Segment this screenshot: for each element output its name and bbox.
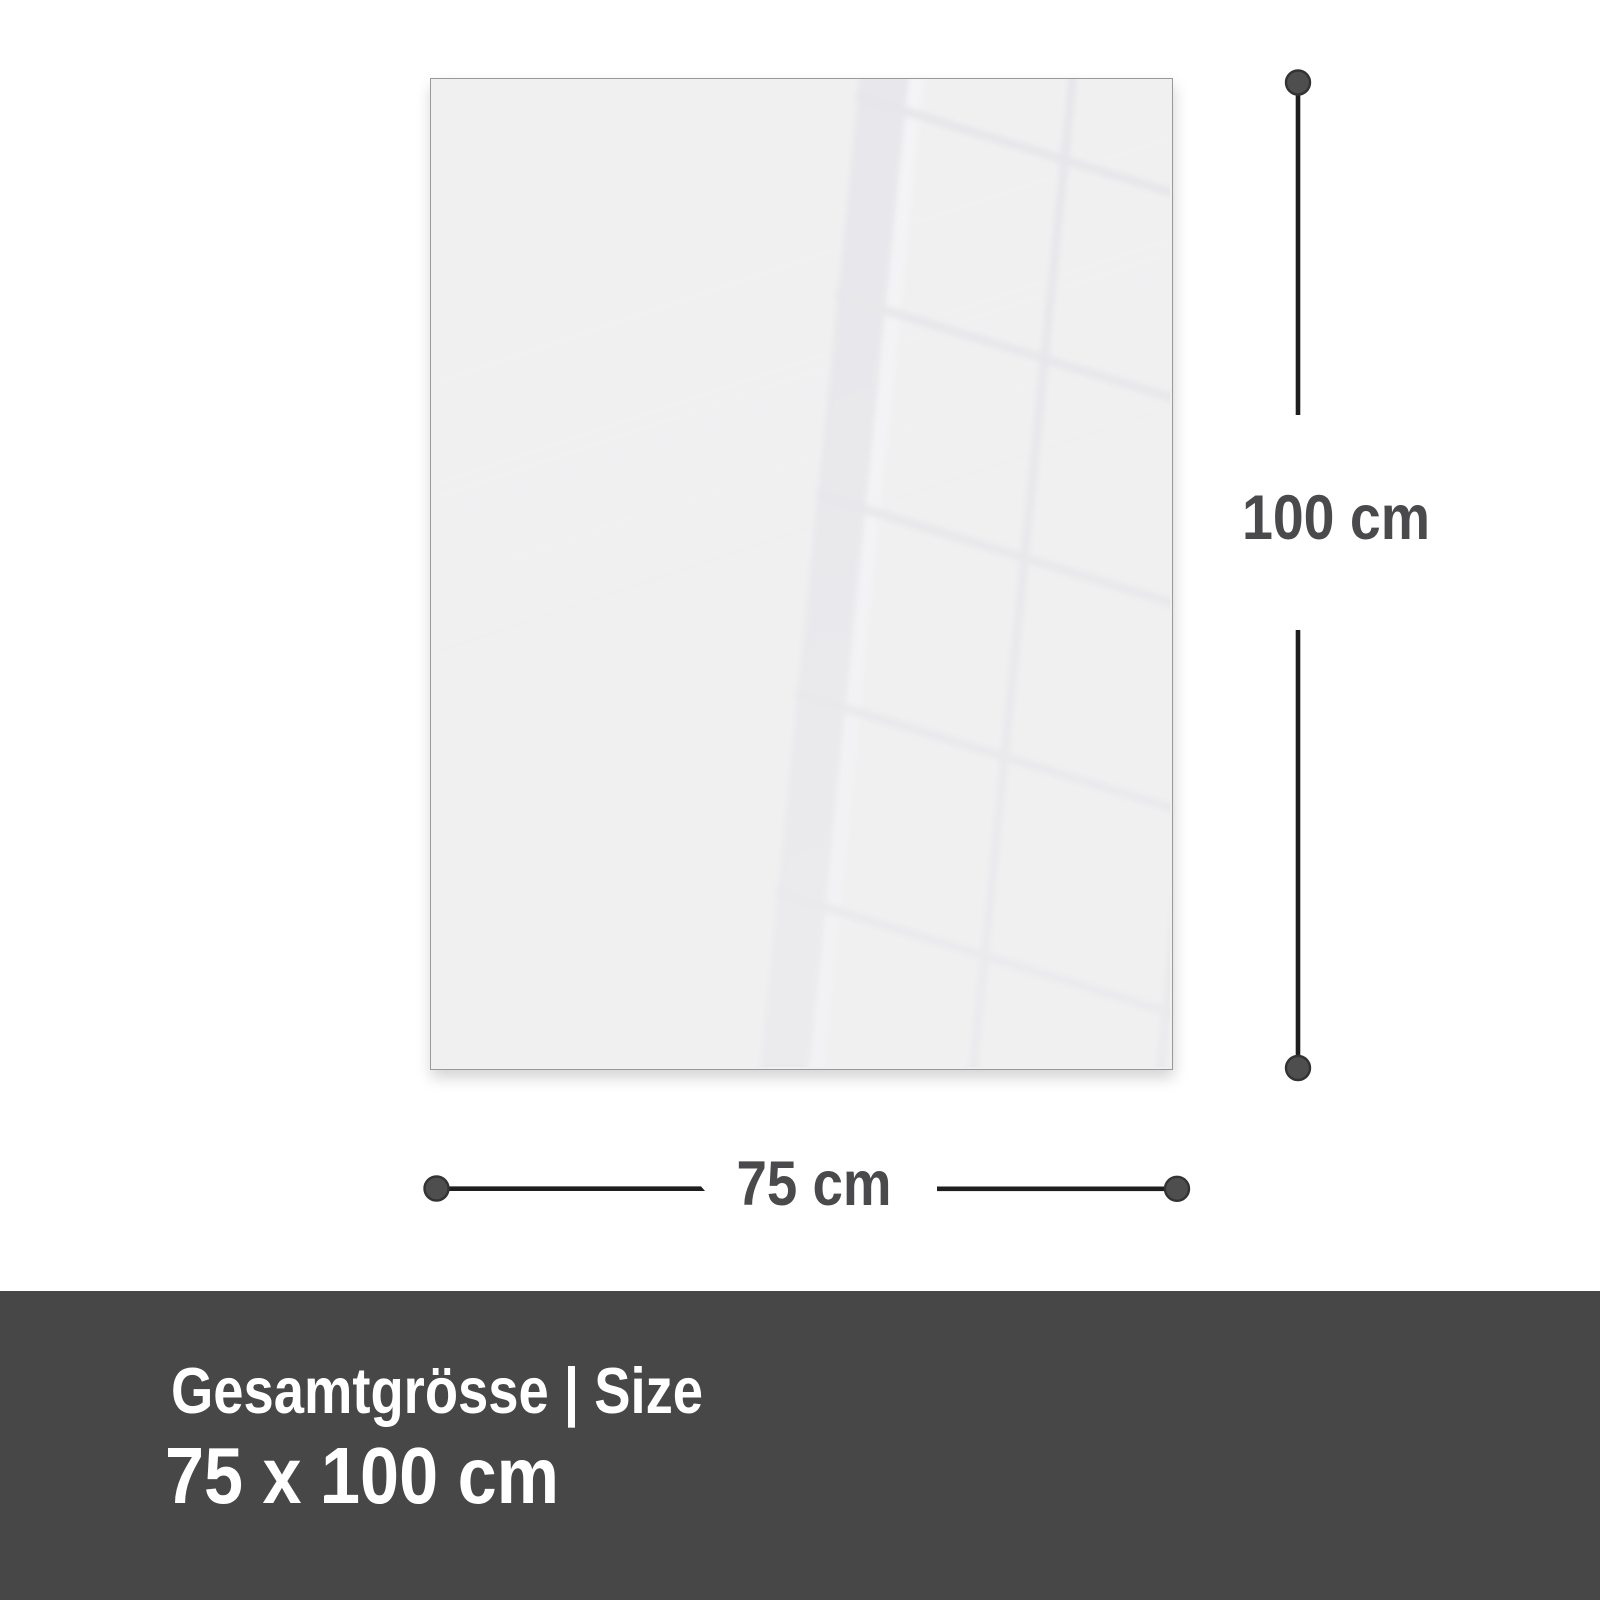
svg-text:75 x 100 cm: 75 x 100 cm [165,1431,559,1520]
svg-text:75 cm: 75 cm [737,1149,892,1219]
svg-text:Gesamtgrösse | Size: Gesamtgrösse | Size [171,1354,703,1428]
svg-text:100 cm: 100 cm [1242,483,1430,553]
